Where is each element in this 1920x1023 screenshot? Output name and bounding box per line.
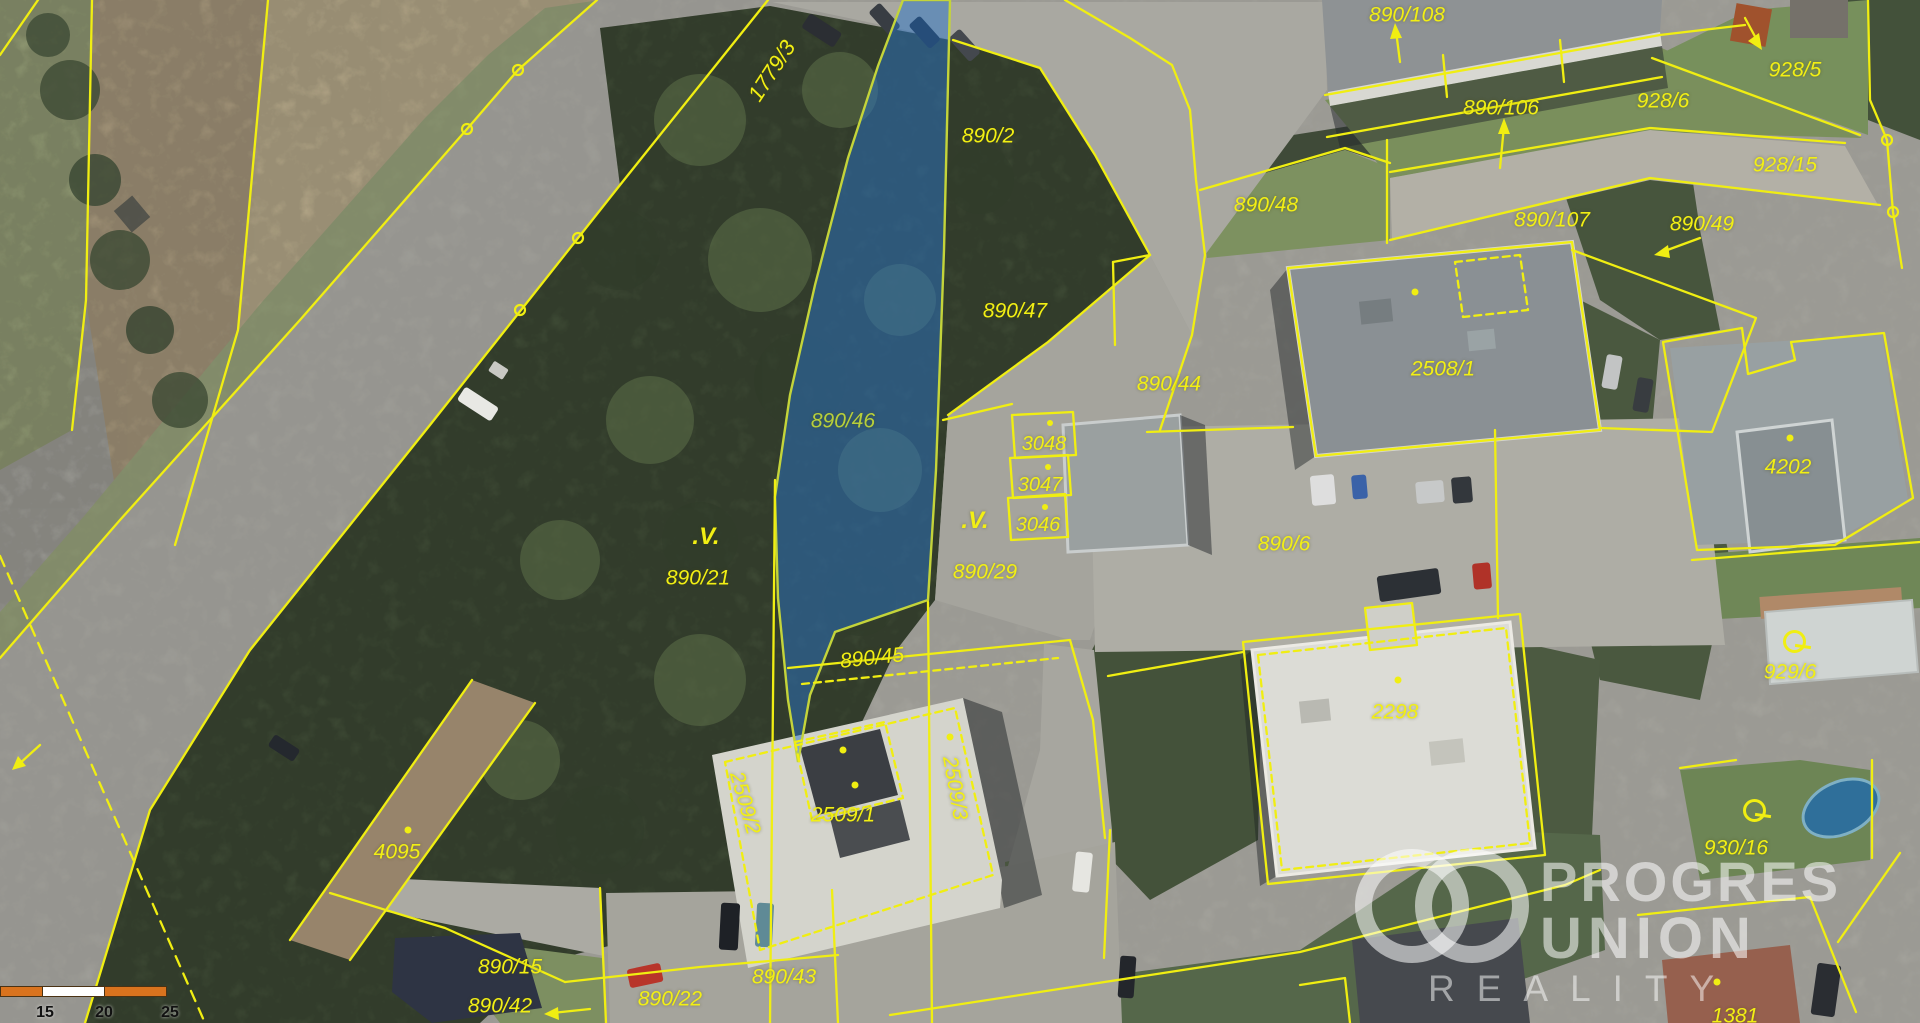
building-2298 (1252, 622, 1535, 876)
aerial-basemap (0, 0, 1920, 1023)
map-canvas[interactable]: 1779/3890/2890/108890/106928/5928/6928/1… (0, 0, 1920, 1023)
house-red-roof (1662, 945, 1800, 1023)
sheds-3046-3048 (1063, 415, 1188, 552)
building-2508-1 (1288, 242, 1600, 456)
building-929-6 (1765, 600, 1918, 684)
